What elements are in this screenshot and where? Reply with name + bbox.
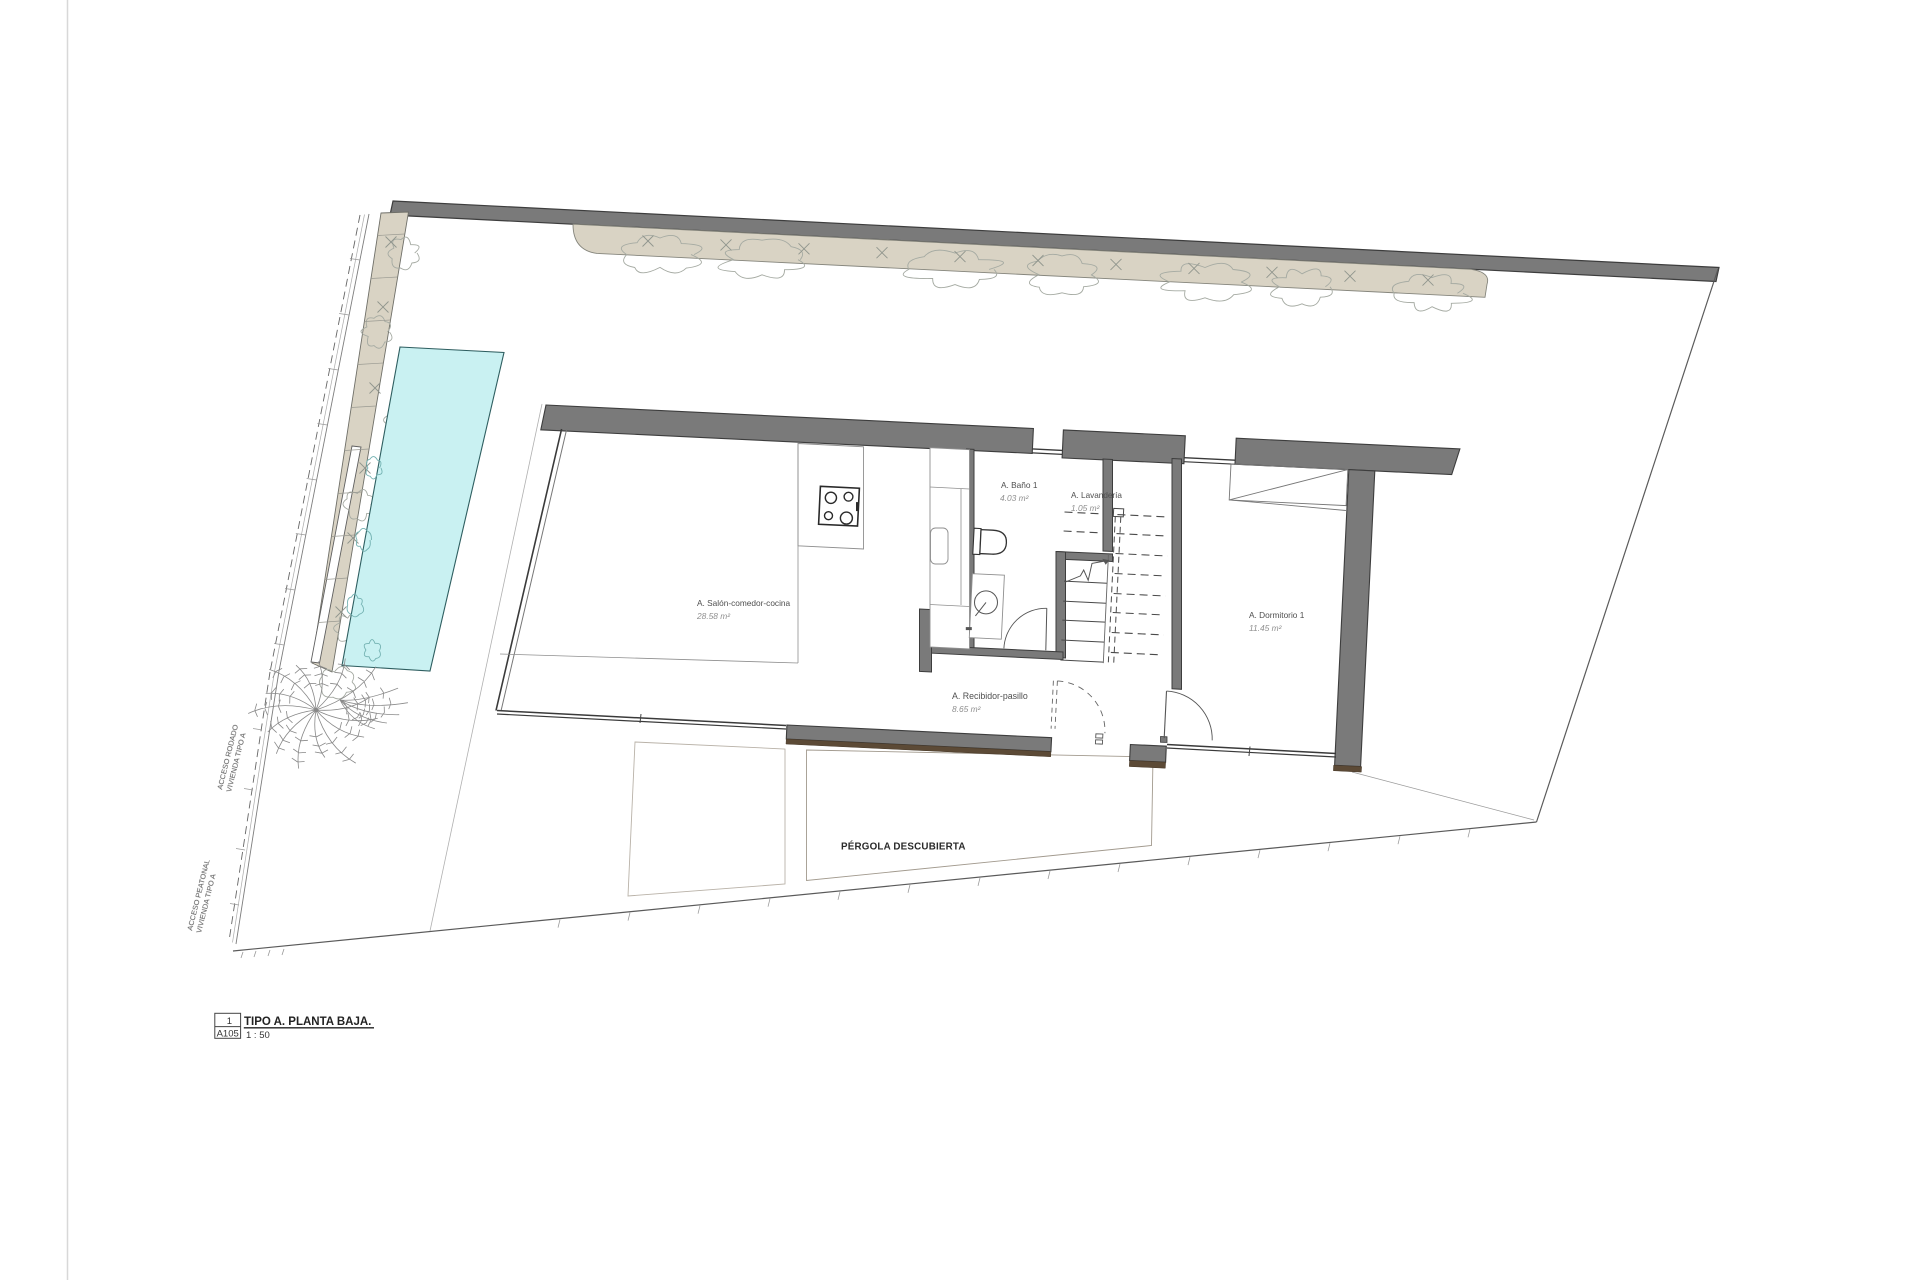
- svg-text:28.58 m²: 28.58 m²: [696, 611, 731, 621]
- svg-text:A. Dormitorio 1: A. Dormitorio 1: [1249, 610, 1305, 620]
- svg-text:A. Lavandería: A. Lavandería: [1071, 491, 1122, 500]
- svg-text:8.65 m²: 8.65 m²: [952, 704, 982, 714]
- svg-text:11.45 m²: 11.45 m²: [1249, 623, 1283, 633]
- svg-text:A105: A105: [217, 1028, 239, 1039]
- svg-text:A. Salón-comedor-cocina: A. Salón-comedor-cocina: [697, 598, 791, 608]
- svg-text:1 : 50: 1 : 50: [246, 1030, 270, 1041]
- svg-text:PÉRGOLA DESCUBIERTA: PÉRGOLA DESCUBIERTA: [841, 841, 966, 853]
- svg-text:A. Baño 1: A. Baño 1: [1001, 480, 1038, 490]
- svg-text:A. Recibidor-pasillo: A. Recibidor-pasillo: [952, 691, 1028, 701]
- svg-text:1.05 m²: 1.05 m²: [1071, 503, 1101, 513]
- svg-text:1: 1: [227, 1016, 232, 1027]
- svg-text:TIPO A. PLANTA BAJA.: TIPO A. PLANTA BAJA.: [244, 1016, 371, 1028]
- svg-text:4.03 m²: 4.03 m²: [1000, 493, 1030, 503]
